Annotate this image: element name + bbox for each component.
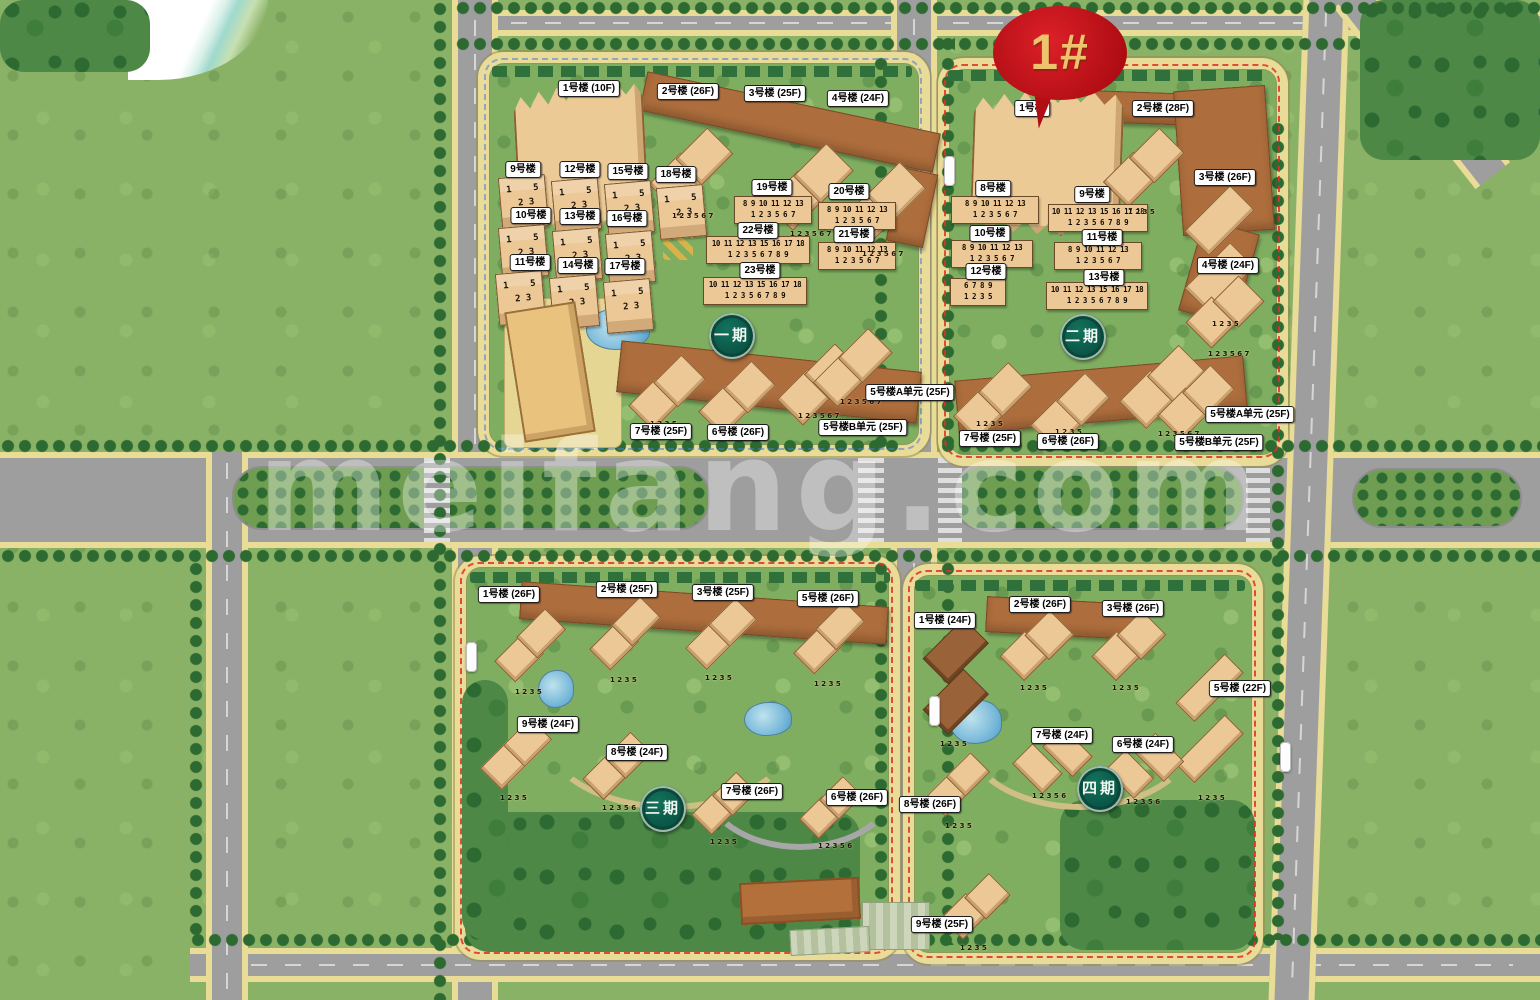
crosswalk [938,458,962,542]
unit-numbers: 1 2 3 5 6 7 [862,250,903,259]
label-phase2-building6: 6号楼 (26F) [1037,433,1099,450]
road-centerline [226,463,228,989]
label-phase4-building7: 7号楼 (24F) [1031,727,1093,744]
label-phase4-building6: 6号楼 (24F) [1112,736,1174,753]
label-phase2-building5B: 5号楼B单元 (25F) [1174,434,1263,451]
label-phase1-building16: 16号楼 [606,210,647,227]
label-phase2-building7: 7号楼 (25F) [959,430,1021,447]
label-phase3-building7: 7号楼 (26F) [721,783,783,800]
unit-numbers: 1 2 3 5 6 7 [790,230,831,239]
phase1-building23-footprint: 10 11 12 13 15 16 17 18 1 2 3 5 6 7 8 9 [703,277,807,305]
phase3-building3-footprint [693,602,749,672]
label-phase2-building13: 13号楼 [1083,269,1124,286]
unit-numbers: 1 2 3 5 6 7 [1208,350,1249,359]
label-phase1-building5A: 5号楼A单元 (25F) [865,384,954,401]
unit-numbers: 1 2 3 5 [945,822,972,831]
label-phase4-building5: 5号楼 (22F) [1209,680,1271,697]
label-phase1-building20: 20号楼 [828,183,869,200]
label-phase1-building1: 1号楼 (10F) [558,80,620,97]
label-phase2-building5A: 5号楼A单元 (25F) [1205,406,1294,423]
tree-row [188,560,203,940]
unit-numbers: 1 2 3 5 [1212,320,1239,329]
unit-numbers: 1 2 3 5 [610,676,637,685]
unit-numbers: 1 2 3 5 [1112,684,1139,693]
phase2-building4-footprint [1192,282,1258,348]
road-centerline [217,964,1513,966]
parking-lot [789,926,870,956]
label-phase1-building14: 14号楼 [557,257,598,274]
unit-numbers: 1 2 3 5 [940,740,967,749]
phase1-building19-footprint: 8 9 10 11 12 13 1 2 3 5 6 7 [734,196,812,224]
label-phase3-building9: 9号楼 (24F) [517,716,579,733]
label-phase3-building1: 1号楼 (26F) [478,586,540,603]
tree-row [455,36,955,51]
label-phase1-building21: 21号楼 [833,226,874,243]
label-phase1-building3: 3号楼 (25F) [744,85,806,102]
label-phase1-building15: 15号楼 [607,163,648,180]
label-phase4-building2: 2号楼 (26F) [1009,596,1071,613]
tree-row [0,548,1540,563]
label-phase3-building5: 5号楼 (26F) [797,590,859,607]
unit-numbers: 1 2 3 5 [1198,794,1225,803]
unit-numbers: 1 2 3 5 6 [1126,798,1160,807]
label-phase1-building17: 17号楼 [604,258,645,275]
phase1-building15-footprint: 1 5 2 3 [604,180,655,236]
label-phase2-building11: 11号楼 [1082,229,1123,246]
label-phase2-building10: 10号楼 [969,225,1010,242]
label-phase4-building8: 8号楼 (26F) [899,796,961,813]
phase4-badge: 四期 [1077,766,1123,812]
label-phase2-building12: 12号楼 [965,263,1006,280]
phase3-commercial-building [739,877,861,925]
road-centerline [1291,11,1327,990]
road-median [1352,468,1522,528]
site-plan-map: 1 2 3 5 6 7 1 2 3 5 6 7 1 2 3 5 6 7 1 5 … [0,0,1540,1000]
road-median [232,466,710,530]
unit-numbers: 1 2 3 5 [960,944,987,953]
label-phase1-building23: 23号楼 [739,262,780,279]
road-median [952,466,1244,530]
label-phase2-building4: 4号楼 (24F) [1197,257,1259,274]
phase2-building11-footprint: 8 9 10 11 12 13 1 2 3 5 6 7 [1054,242,1142,270]
label-phase4-building3: 3号楼 (26F) [1102,600,1164,617]
forest-patch [1360,0,1540,160]
label-phase1-building19: 19号楼 [751,179,792,196]
label-phase1-building13: 13号楼 [559,208,600,225]
unit-numbers: 1 2 3 5 [500,794,527,803]
label-phase3-building6: 6号楼 (26F) [826,789,888,806]
label-phase1-building18: 18号楼 [655,166,696,183]
label-phase1-building10: 10号楼 [510,207,551,224]
unit-numbers: 1 2 3 5 6 [1032,792,1066,801]
phase4-building2-footprint [1006,616,1068,680]
hedge-row [915,580,1245,591]
label-phase1-building12: 12号楼 [559,161,600,178]
phase1-building22-footprint: 10 11 12 13 15 16 17 18 1 2 3 5 6 7 8 9 [706,236,810,264]
label-phase1-building5B: 5号楼B单元 (25F) [818,419,907,436]
unit-numbers: 1 2 3 5 6 [602,804,636,813]
unit-numbers: 1 2 3 5 [976,420,1003,429]
unit-numbers: 1 2 3 5 [814,680,841,689]
hedge-row [492,66,912,77]
label-phase3-building8: 8号楼 (24F) [606,744,668,761]
phase2-badge: 二期 [1060,314,1106,360]
unit-numbers: 1 2 3 5 6 [818,842,852,851]
forest-patch [0,0,150,72]
bus-icon [1280,742,1291,772]
label-phase1-building4: 4号楼 (24F) [827,90,889,107]
road-left-lower-vertical [206,452,248,1000]
label-phase3-building3: 3号楼 (25F) [692,584,754,601]
phase2-building8-footprint: 8 9 10 11 12 13 1 2 3 5 6 7 [951,196,1039,224]
label-phase4-building9: 9号楼 (25F) [911,916,973,933]
phase1-badge: 一期 [709,313,755,359]
unit-numbers: 1 2 3 5 [705,674,732,683]
label-phase1-building11: 11号楼 [510,254,551,271]
label-phase1-building22: 22号楼 [737,222,778,239]
phase3-building5-footprint [802,604,856,678]
phase1-building17-footprint: 1 5 2 3 [603,278,654,334]
label-phase3-building2: 2号楼 (25F) [596,581,658,598]
tree-row [432,0,447,1000]
unit-numbers: 1 2 3 5 [1020,684,1047,693]
phase3-building2-footprint [598,600,652,674]
label-phase2-building8: 8号楼 [975,180,1011,197]
label-phase1-building2: 2号楼 (26F) [657,83,719,100]
label-phase1-building9: 9号楼 [505,161,541,178]
phase2-building2-footprint [1112,132,1176,208]
marker-balloon-label[interactable]: 1# [993,6,1127,100]
phase3-badge: 三期 [640,786,686,832]
label-phase4-building1: 1号楼 (24F) [914,612,976,629]
label-phase1-building6: 6号楼 (26F) [707,424,769,441]
bus-icon [944,156,955,186]
bus-icon [466,642,477,672]
label-phase2-building9: 9号楼 [1074,186,1110,203]
bus-icon [929,696,940,726]
crosswalk [858,458,884,542]
phase2-building12-footprint: 6 7 8 9 1 2 3 5 [950,278,1006,306]
phase2-building13-footprint: 10 11 12 13 15 16 17 18 1 2 3 5 6 7 8 9 [1046,282,1148,310]
unit-numbers: 1 2 3 5 [515,688,542,697]
pond [744,702,792,736]
label-phase1-building7: 7号楼 (25F) [630,423,692,440]
unit-numbers: 1 2 3 5 [1128,208,1155,217]
phase3-building1-footprint [503,612,557,686]
label-phase2-building3: 3号楼 (26F) [1194,169,1256,186]
phase4-building3-footprint [1098,616,1160,680]
crosswalk [1246,458,1270,542]
label-phase2-building2: 2号楼 (28F) [1132,100,1194,117]
unit-numbers: 1 2 3 5 [710,838,737,847]
unit-numbers: 1 2 3 5 6 7 [672,212,713,221]
phase4-building5-footprint [1188,650,1232,790]
